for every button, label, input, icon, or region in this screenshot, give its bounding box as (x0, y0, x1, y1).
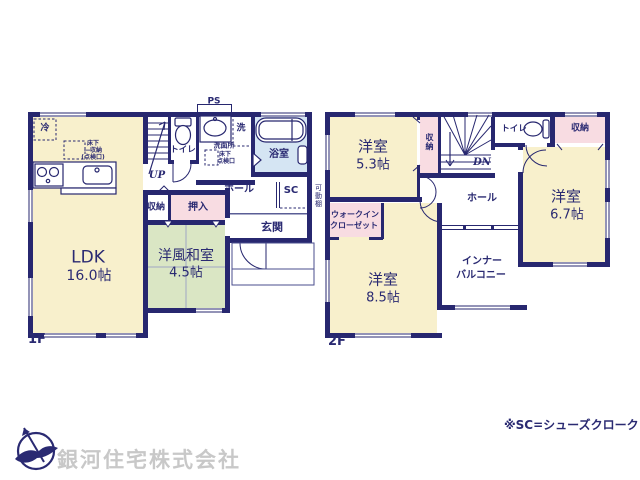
floor1-stairs (145, 122, 168, 174)
sc-label: SC (284, 186, 299, 196)
bath-counter-icon (298, 146, 307, 164)
stairs-arrow (149, 122, 165, 174)
hall-label-2f: ホール (467, 194, 497, 204)
floorplan-canvas: 冷 床下 ―収納 (点検口) LDK 16.0帖 UP トイレ 洗面所 床下 点… (0, 0, 640, 480)
toilet-label-1f: トイレ (170, 146, 196, 155)
laundry-label: 洗 (236, 125, 245, 134)
closet-a-label: 収納 (425, 133, 433, 151)
porch-step-2 (232, 269, 314, 285)
oshiire-label: 押入 (188, 203, 208, 213)
toilet-door-arc (173, 164, 191, 182)
bedroom-b-size-label: 6.7帖 (550, 209, 584, 222)
bedroom-c-label: 洋室 (368, 273, 398, 288)
toilet-door-arc-2f (526, 145, 547, 166)
floor-storage-label-3: (点検口) (81, 155, 105, 161)
kitchen-counter (33, 162, 116, 194)
floor-hatch-label-2: 点検口 (217, 159, 235, 165)
ldk-label: LDK (71, 250, 105, 267)
floor2-plan: 洋室 5.3帖 収納 DN トイレ 収納 洋室 6.7帖 ホール ウォークイン … (325, 110, 615, 350)
bath-door-icon (253, 153, 261, 167)
wic-label-2: クローゼット (330, 222, 378, 230)
toilet-bowl-icon (176, 126, 191, 145)
toilet-tank-icon (175, 118, 191, 126)
closet-b-door-mark (557, 144, 562, 150)
wic-label-1: ウォークイン (331, 211, 379, 219)
movable-shelf-label: 可動棚 (315, 184, 322, 208)
balcony-rail (442, 225, 518, 230)
stairs-up-label: UP (149, 171, 165, 181)
ldk-size-label: 16.0帖 (66, 269, 111, 283)
entrance-door-arc (240, 243, 266, 269)
stairs-dn-label: DN (473, 158, 491, 168)
toilet-tank-icon-2f (543, 120, 549, 138)
floor1-tag: 1F (28, 332, 46, 347)
entrance-label: 玄関 (261, 222, 283, 233)
company-name: 銀河住宅株式会社 (57, 444, 241, 474)
company-logo (13, 422, 61, 476)
floor2-tag: 2F (328, 334, 346, 349)
closet-label-1f: 収納 (147, 204, 165, 213)
porch-step-1 (232, 243, 314, 269)
washroom-label: 洗面所 (214, 143, 235, 150)
floor1-plan: 冷 床下 ―収納 (点検口) LDK 16.0帖 UP トイレ 洗面所 床下 点… (28, 110, 316, 350)
bedroom-a-size-label: 5.3帖 (356, 159, 390, 172)
floor2-fixtures (524, 120, 549, 138)
ps-label: PS (207, 98, 220, 107)
closet-b-label: 収納 (571, 125, 589, 134)
bedroom-c-size-label: 8.5帖 (366, 292, 400, 305)
balcony-label-2: バルコニー (456, 271, 506, 281)
washitsu-size-label: 4.5帖 (169, 267, 203, 280)
washitsu-label: 洋風和室 (158, 249, 214, 263)
bedroom-b-label: 洋室 (551, 190, 581, 205)
bedroom-a-label: 洋室 (358, 140, 388, 155)
balcony-label-1: インナー (462, 257, 502, 267)
bedroom-a-door-arc (420, 176, 436, 208)
bath-label: 浴室 (269, 150, 289, 160)
hall-label-1f: ホール (224, 185, 254, 195)
sink-icon (83, 166, 112, 184)
entrance-step-line (230, 213, 307, 215)
toilet-label-2f: トイレ (501, 125, 527, 134)
sc-note: ※SC=シューズクローク (504, 416, 639, 433)
fridge-label: 冷 (40, 125, 49, 134)
